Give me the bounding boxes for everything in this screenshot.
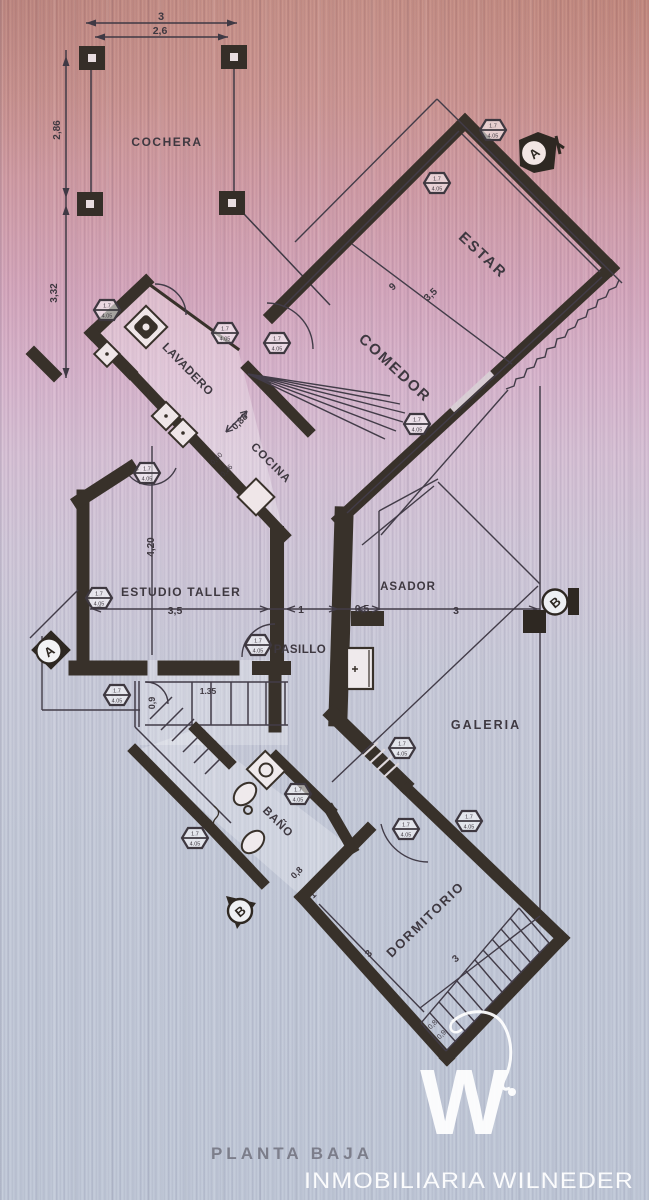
svg-text:3,5: 3,5 [422, 286, 440, 304]
svg-text:ESTAR: ESTAR [455, 229, 510, 282]
svg-text:PASILLO: PASILLO [274, 644, 326, 656]
svg-text:3,32: 3,32 [49, 283, 60, 303]
svg-text:3: 3 [450, 953, 462, 965]
svg-text:9: 9 [387, 281, 399, 293]
svg-text:W: W [420, 1050, 508, 1154]
svg-text:GALERIA: GALERIA [451, 718, 521, 732]
svg-text:DORMITORIO: DORMITORIO [383, 878, 467, 960]
svg-text:4,20: 4,20 [146, 537, 157, 557]
svg-text:PLANTA BAJA: PLANTA BAJA [211, 1144, 373, 1163]
svg-text:1: 1 [298, 604, 304, 616]
svg-text:COCHERA: COCHERA [131, 135, 202, 149]
svg-text:3,5: 3,5 [168, 605, 183, 617]
svg-text:1.35: 1.35 [200, 686, 217, 696]
svg-text:3: 3 [158, 11, 164, 23]
svg-text:0,9: 0,9 [147, 697, 157, 710]
svg-text:INMOBILIARIA WILNEDER: INMOBILIARIA WILNEDER [304, 1168, 634, 1193]
svg-text:2,86: 2,86 [52, 120, 63, 140]
svg-text:COMEDOR: COMEDOR [355, 331, 434, 406]
svg-text:3: 3 [453, 605, 459, 617]
svg-text:ASADOR: ASADOR [380, 581, 436, 593]
svg-text:0,5: 0,5 [355, 603, 370, 615]
svg-text:ESTUDIO TALLER: ESTUDIO TALLER [121, 585, 241, 599]
svg-text:2,6: 2,6 [153, 25, 168, 37]
